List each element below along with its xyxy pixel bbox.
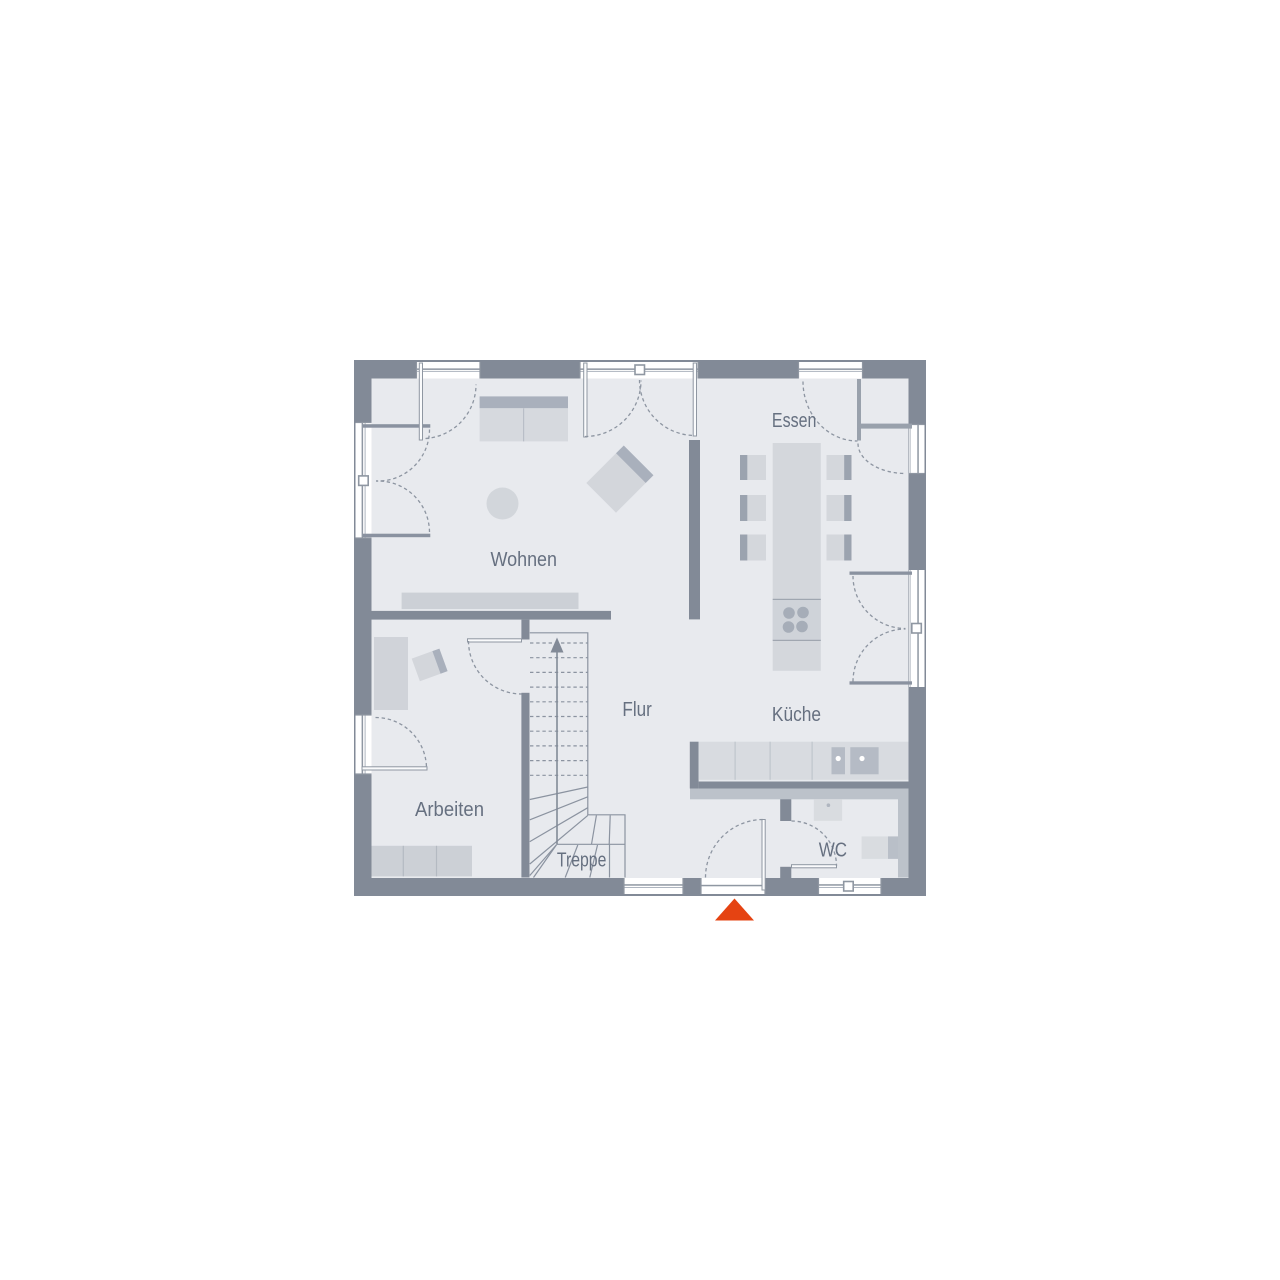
svg-text:Küche: Küche bbox=[772, 703, 821, 726]
svg-text:Wohnen: Wohnen bbox=[491, 548, 558, 571]
svg-text:Essen: Essen bbox=[772, 409, 817, 432]
svg-text:WC: WC bbox=[819, 839, 847, 862]
svg-text:Arbeiten: Arbeiten bbox=[415, 798, 484, 821]
svg-text:Flur: Flur bbox=[622, 698, 652, 721]
svg-text:Treppe: Treppe bbox=[557, 848, 607, 871]
